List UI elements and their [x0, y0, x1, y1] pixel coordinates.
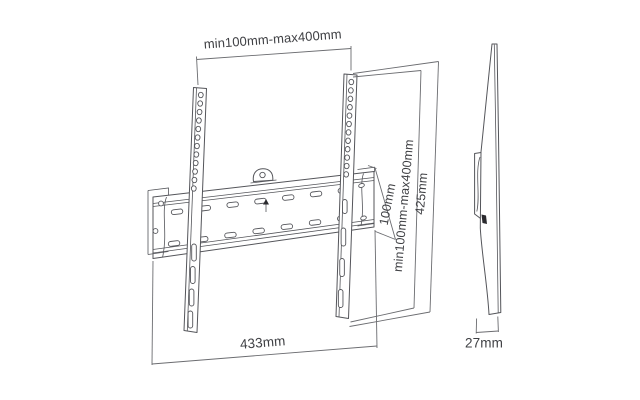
mount-hole: [193, 169, 198, 174]
side-view: 27mm: [465, 44, 503, 351]
mount-hole: [346, 138, 351, 143]
plate-slot: [171, 209, 183, 215]
plate-slot: [224, 232, 236, 238]
front-view: min100mm-max400mm 100mm min100mm-max400m…: [148, 26, 439, 365]
mount-hole: [193, 160, 198, 165]
plate-slot: [227, 202, 239, 208]
mount-hole: [196, 118, 201, 123]
mount-hole: [191, 186, 196, 191]
mount-slot: [341, 228, 346, 246]
cap-hole: [153, 229, 158, 234]
plate-slot: [310, 191, 322, 197]
mount-hole: [347, 121, 352, 126]
dim-label-top-width: min100mm-max400mm: [203, 26, 342, 51]
dimension-top-width: min100mm-max400mm: [197, 26, 352, 85]
mount-hole: [344, 172, 349, 177]
mount-hole: [195, 135, 200, 140]
mount-hole: [196, 126, 201, 131]
plate-slot: [253, 228, 265, 234]
mount-slot: [343, 200, 348, 214]
mount-hole: [348, 88, 353, 93]
mount-hole: [197, 109, 202, 114]
plate-slot: [168, 240, 180, 246]
mount-hole: [348, 105, 353, 110]
mount-hole: [192, 177, 197, 182]
cap-hole: [159, 201, 164, 206]
mount-hole: [346, 130, 351, 135]
mount-hole: [198, 92, 203, 97]
dimension-depth: 27mm: [465, 317, 503, 351]
mount-slot: [338, 290, 343, 308]
mount-hole: [349, 79, 354, 84]
mount-hole: [194, 152, 199, 157]
mount-hole: [195, 143, 200, 148]
plate-slot: [281, 224, 293, 230]
mount-slot: [191, 267, 196, 284]
mount-hole: [198, 101, 203, 106]
mount-hole: [345, 155, 350, 160]
mount-hole: [347, 113, 352, 118]
mount-hole: [344, 163, 349, 168]
lock-latch: [251, 169, 277, 183]
wall-mount-drawing: min100mm-max400mm 100mm min100mm-max400m…: [0, 0, 640, 400]
mount-slot: [189, 289, 194, 306]
plate-slot: [309, 219, 321, 225]
mount-slot: [192, 244, 197, 261]
mount-hole: [348, 96, 353, 101]
dim-label-depth: 27mm: [465, 336, 503, 351]
diagram-canvas: min100mm-max400mm 100mm min100mm-max400m…: [0, 0, 640, 400]
plate-slot: [282, 195, 294, 201]
dim-label-plate-width: 433mm: [239, 333, 286, 352]
mount-slot: [340, 259, 345, 277]
dim-label-arm-height: 425mm: [413, 172, 431, 215]
mount-slot: [188, 311, 193, 328]
mount-hole: [345, 147, 350, 152]
